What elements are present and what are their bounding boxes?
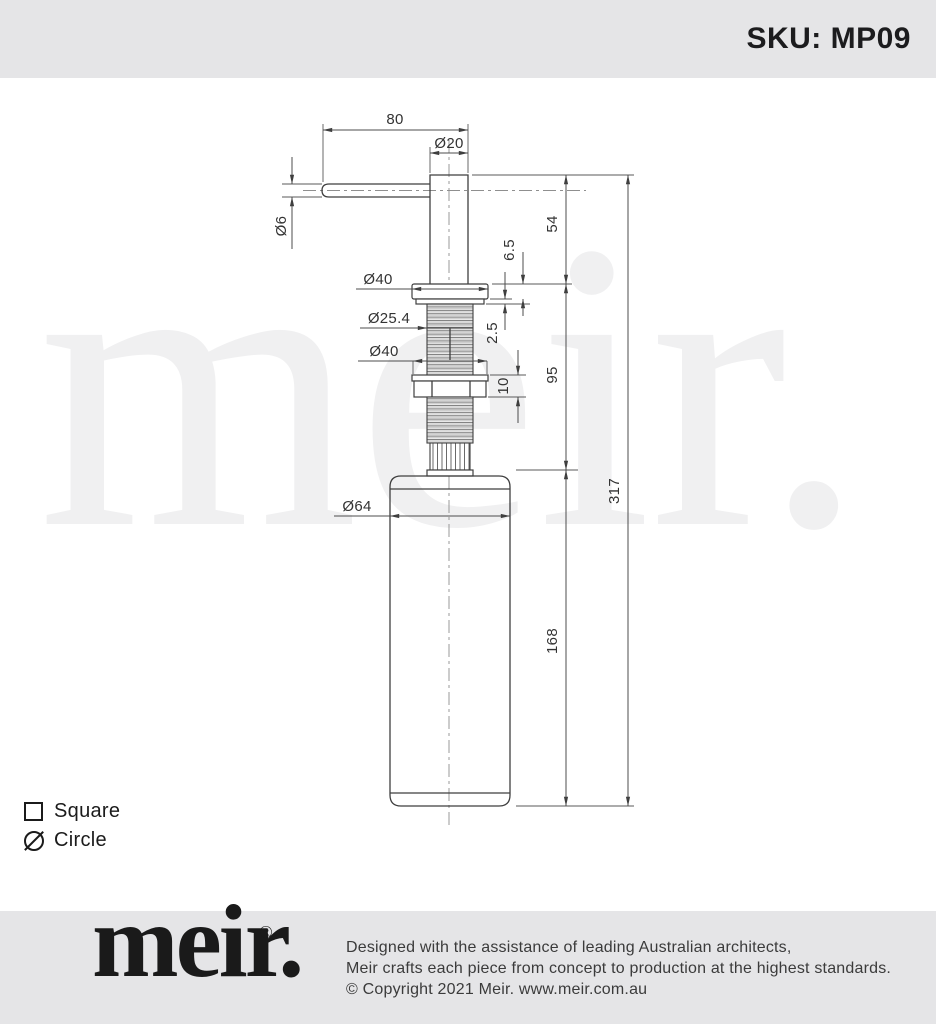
footer-line-3: © Copyright 2021 Meir. www.meir.com.au [346,979,891,1000]
dim-label-above-bench: 54 [544,215,561,232]
dim-label-spout-length: 80 [386,111,403,128]
dim-label-total-height: 317 [606,478,623,504]
dim-label-bottle-diameter: Ø64 [342,498,371,515]
top-bar: SKU: MP09 [0,0,936,78]
circle-slash-icon [24,831,44,851]
dimension-168: 168 [544,470,566,806]
footer-bar: meir. ® Designed with the assistance of … [0,911,936,1024]
legend-square-label: Square [54,800,120,823]
dim-label-spout-tube-diameter: Ø6 [273,216,290,237]
footer-line-2: Meir crafts each piece from concept to p… [346,958,891,979]
dim-label-washer-thickness: 2.5 [484,322,501,344]
dim-label-flange-diameter: Ø40 [363,271,392,288]
dimension-6-5: 6.5 [501,239,523,316]
dim-label-bottle-height: 168 [544,628,561,654]
dimension-95: 95 [544,284,566,470]
dimension-317: 317 [606,175,628,806]
collar-base [427,470,473,476]
dimension-d6: Ø6 [273,157,292,249]
splined-collar [430,443,470,470]
flange [412,284,488,299]
dimension-d20: Ø20 [430,135,468,153]
shape-legend: Square Circle [24,797,120,855]
dimension-10: 10 [495,350,518,423]
dim-label-nut-diameter: Ø40 [369,343,398,360]
dim-label-spout-diameter: Ø20 [434,135,463,152]
dim-label-nut-height: 10 [495,377,512,394]
dimension-54: 54 [544,175,566,284]
dimension-d64: Ø64 [334,498,510,516]
bottle [390,476,510,806]
dispenser-outline [322,175,510,806]
legend-row-circle: Circle [24,826,120,855]
registered-mark: ® [259,922,273,943]
dimension-2-5: 2.5 [484,272,505,344]
square-icon [24,802,43,821]
technical-drawing: 80 Ø20 Ø6 Ø40 Ø25.4 Ø40 6.5 2.5 10 [0,0,936,1024]
nut-washer [412,375,488,381]
dim-label-thread-diameter: Ø25.4 [368,310,410,327]
lower-thread [427,397,473,443]
dim-label-below-bench: 95 [544,366,561,383]
hex-nut [414,381,486,397]
legend-circle-label: Circle [54,829,107,852]
footer-line-1: Designed with the assistance of leading … [346,937,891,958]
sku-label: SKU: MP09 [746,22,936,56]
dimension-80: 80 [323,111,468,130]
flange-lip [416,299,484,304]
legend-row-square: Square [24,797,120,826]
dim-label-flange-height: 6.5 [501,239,518,261]
footer-text: Designed with the assistance of leading … [346,937,891,1000]
centerlines [303,140,586,828]
